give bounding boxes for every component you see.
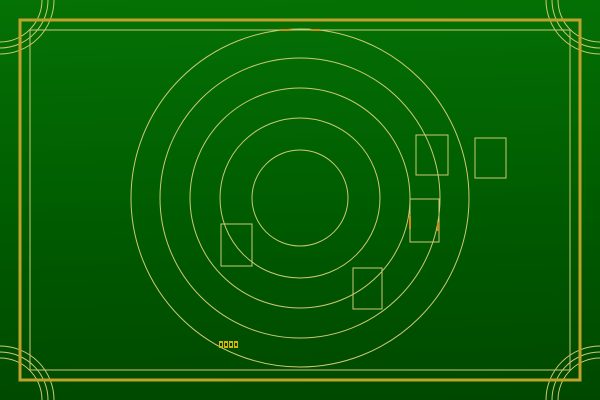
- corner-arc-2-2: [0, 346, 54, 400]
- score-counter: [219, 341, 238, 348]
- counter-digit-center-1: [225, 343, 227, 346]
- corner-arc-2-1: [0, 352, 48, 400]
- wheel-circle-4: [131, 29, 469, 367]
- inner-border: [30, 30, 570, 370]
- bet-box-3[interactable]: [221, 224, 252, 266]
- corner-arc-3-2: [546, 346, 600, 400]
- bet-box-4[interactable]: [353, 268, 382, 309]
- wheel-circle-3: [160, 58, 440, 338]
- table-canvas: [0, 0, 600, 400]
- counter-digit-center-3: [235, 343, 237, 346]
- wheel-circle-2: [190, 88, 410, 308]
- corner-arc-3-1: [552, 352, 600, 400]
- bet-box-0[interactable]: [416, 135, 448, 175]
- wheel-circle-1: [220, 118, 380, 278]
- counter-digit-center-2: [230, 343, 232, 346]
- corner-arc-1-1: [552, 0, 600, 48]
- bet-box-1[interactable]: [475, 138, 506, 178]
- outer-border: [20, 20, 580, 380]
- corner-arc-0-1: [0, 0, 48, 48]
- corner-arc-0-2: [0, 0, 54, 54]
- corner-arc-1-2: [546, 0, 600, 54]
- game-table: [0, 0, 600, 400]
- wheel-circle-0: [252, 150, 348, 246]
- counter-digit-center-0: [220, 343, 222, 346]
